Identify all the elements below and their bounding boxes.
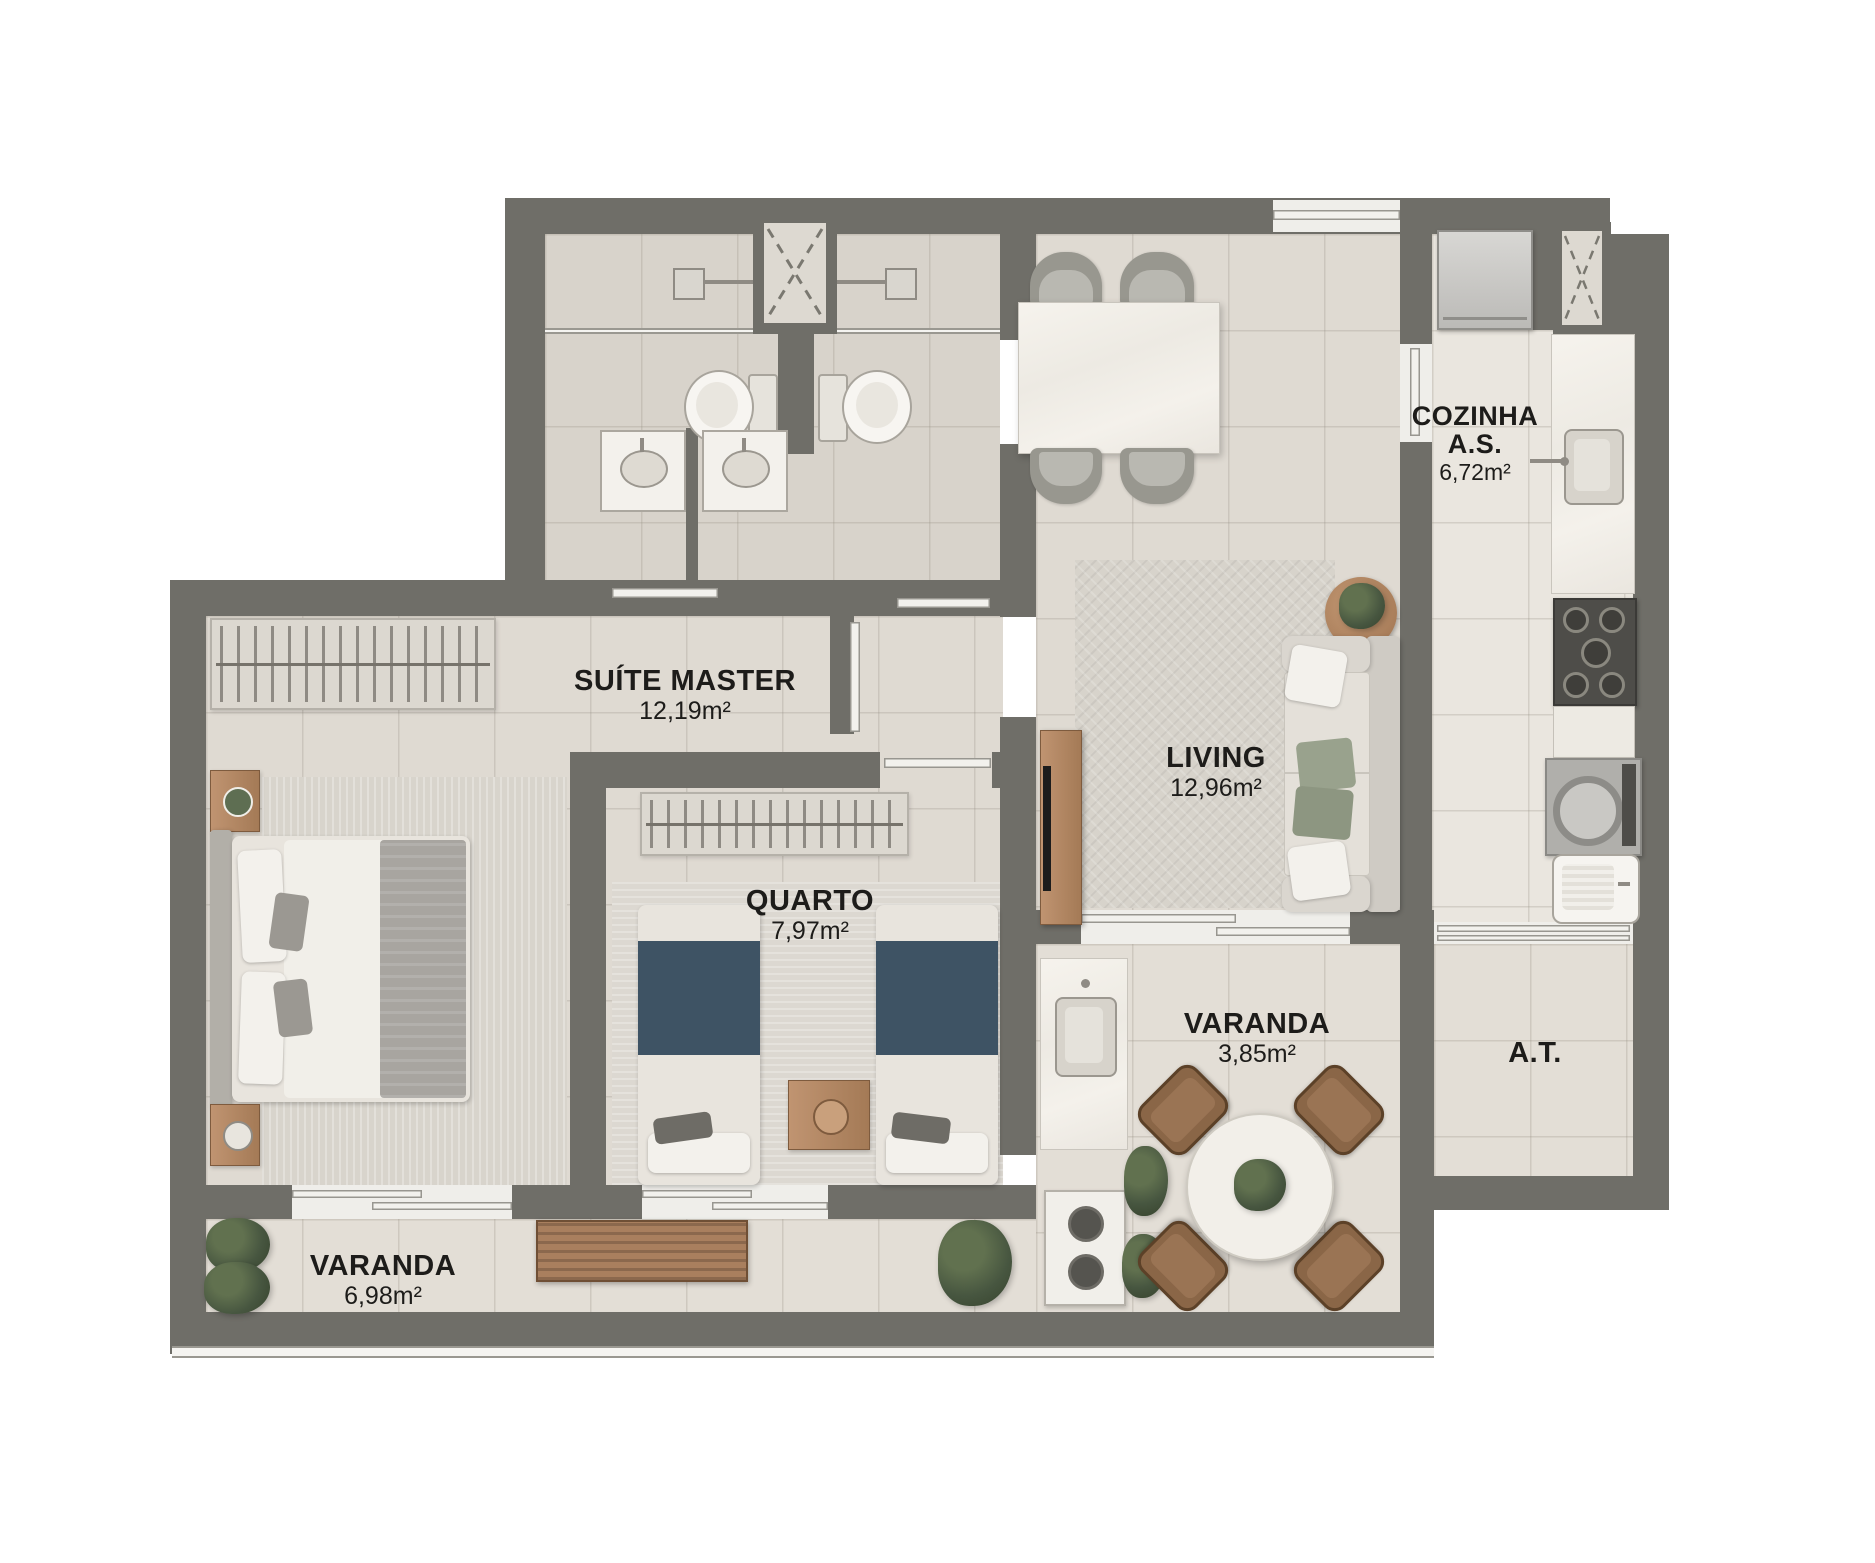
bathroom-vanity: [702, 430, 788, 512]
laundry-tub: [1552, 854, 1640, 924]
room-label-quarto: QUARTO 7,97m²: [746, 886, 874, 946]
wall-segment: [206, 1185, 292, 1219]
room-name: LIVING: [1166, 743, 1266, 773]
varanda-sink: [1055, 997, 1117, 1077]
shower-arm-icon: [837, 280, 885, 284]
tv-panel: [1040, 730, 1082, 925]
wall-segment: [1400, 234, 1432, 344]
suite-bath-door: [612, 588, 718, 598]
room-area: 7,97m²: [746, 916, 874, 946]
kitchen-counter: [1551, 334, 1635, 594]
stove: [1553, 598, 1637, 706]
wall-segment: [170, 580, 1003, 616]
room-area: 3,85m²: [1184, 1039, 1330, 1069]
shower-arm-icon: [703, 280, 753, 284]
varanda-counter: [1040, 958, 1128, 1150]
toilet: [842, 370, 912, 444]
room-label-cozinha: COZINHA A.S. 6,72m²: [1412, 402, 1539, 486]
quarto-wardrobe: [640, 792, 909, 856]
wall-segment: [1400, 910, 1434, 1346]
faucet-icon: [1081, 979, 1090, 988]
twin-bed: [876, 905, 998, 1185]
wall-segment: [1633, 234, 1669, 1210]
shower-glass: [545, 328, 753, 334]
wall-segment: [512, 1185, 642, 1219]
suite-sliding-door: [292, 1190, 422, 1198]
wall-segment: [170, 616, 206, 1354]
plant: [1234, 1159, 1286, 1211]
bed-headboard: [210, 830, 232, 1108]
wall-segment: [505, 198, 1610, 234]
bed-throw: [380, 840, 466, 1098]
fridge: [1437, 230, 1533, 330]
kitchen-sink: [1564, 429, 1624, 505]
shower-head-icon: [885, 268, 917, 300]
quarto-sliding-door: [712, 1202, 828, 1210]
room-name: A.T.: [1508, 1038, 1562, 1068]
shower-glass: [837, 328, 1000, 334]
dining-chair: [1030, 252, 1102, 308]
room-area: 12,19m²: [574, 696, 796, 726]
elevator-shaft: [753, 212, 837, 334]
living-sliding-door: [1081, 914, 1236, 923]
room-area: 6,72m²: [1412, 459, 1539, 487]
nightstand: [210, 1104, 260, 1166]
bench: [536, 1220, 748, 1282]
wall-segment: [686, 428, 698, 582]
double-bed: [232, 836, 470, 1102]
nightstand: [210, 770, 260, 832]
dining-table: [1018, 302, 1220, 454]
room-label-suite: SUÍTE MASTER 12,19m²: [574, 666, 796, 726]
room-label-varanda: VARANDA 6,98m²: [310, 1251, 456, 1311]
quarto-door: [884, 758, 991, 768]
room-label-varanda-gourmet: VARANDA 3,85m²: [1184, 1009, 1330, 1069]
varanda-railing: [172, 1346, 1434, 1358]
wall-segment: [1350, 910, 1400, 944]
suite-door: [850, 622, 860, 732]
duct-shaft: [1553, 222, 1611, 334]
room-name: VARANDA: [310, 1251, 456, 1281]
round-table: [1186, 1113, 1334, 1261]
suite-sliding-door: [372, 1202, 512, 1210]
room-label-living: LIVING 12,96m²: [1166, 743, 1266, 803]
wall-segment: [570, 752, 880, 788]
room-label-at: A.T.: [1508, 1038, 1562, 1068]
living-sliding-door: [1216, 927, 1350, 936]
quarto-sliding-door: [642, 1190, 752, 1198]
as-glass-door: [1437, 935, 1630, 941]
room-area: 6,98m²: [310, 1281, 456, 1311]
wall-segment: [1400, 1176, 1669, 1210]
room-name: SUÍTE MASTER: [574, 666, 796, 696]
room-name: VARANDA: [1184, 1009, 1330, 1039]
dining-chair: [1120, 252, 1194, 308]
floor-plan: COZINHA A.S. 6,72m² SUÍTE MASTER 12,19m²…: [0, 0, 1875, 1563]
kitchen-counter-2: [1553, 706, 1635, 758]
wall-segment: [828, 1185, 1036, 1219]
dining-window: [1273, 210, 1400, 220]
cooktop-unit: [1044, 1190, 1126, 1306]
washing-machine: [1545, 758, 1642, 856]
quarto-nightstand: [788, 1080, 870, 1150]
twin-bed: [638, 905, 760, 1185]
shower-head-icon: [673, 268, 705, 300]
room-name: QUARTO: [746, 886, 874, 916]
tv: [1043, 766, 1051, 891]
social-bath-door: [897, 598, 990, 608]
room-area: 12,96m²: [1166, 773, 1266, 803]
plant: [1339, 583, 1385, 629]
wall-segment: [992, 752, 1003, 788]
wall-segment: [206, 1312, 1434, 1346]
suite-wardrobe: [210, 618, 496, 710]
room-name: A.S.: [1412, 430, 1539, 458]
bathroom-vanity: [600, 430, 686, 512]
as-glass-door: [1437, 925, 1630, 932]
room-name: COZINHA: [1412, 402, 1539, 430]
wall-segment: [570, 788, 606, 1185]
wall-segment: [1400, 442, 1432, 930]
sofa: [1282, 636, 1400, 912]
wall-segment: [505, 234, 545, 582]
wall-segment: [1000, 717, 1036, 1155]
